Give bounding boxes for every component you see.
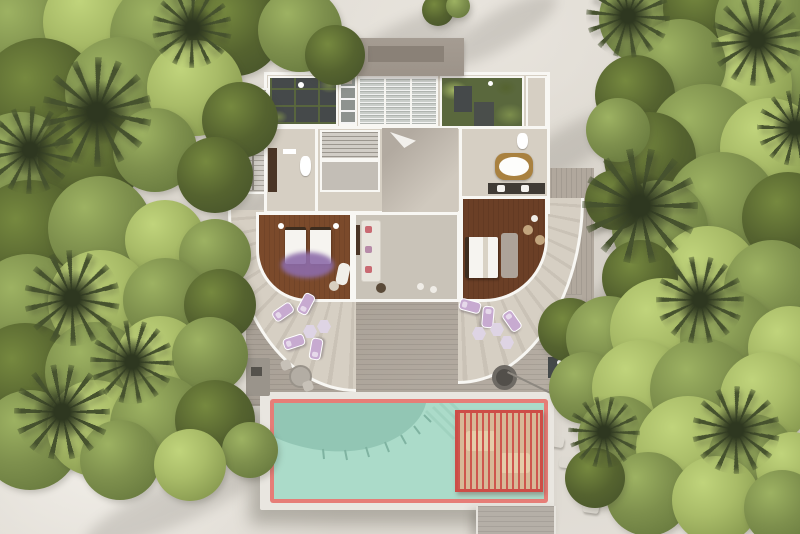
- tree-canopy: [154, 429, 226, 501]
- palm-tree: [582, 148, 698, 264]
- vegetation-layer: [0, 0, 800, 534]
- aerial-villa-render: [0, 0, 800, 534]
- tree-canopy: [446, 0, 470, 18]
- palm-tree: [14, 364, 110, 460]
- tree-canopy: [305, 25, 365, 85]
- tree-canopy: [177, 137, 253, 213]
- tree-canopy: [222, 422, 278, 478]
